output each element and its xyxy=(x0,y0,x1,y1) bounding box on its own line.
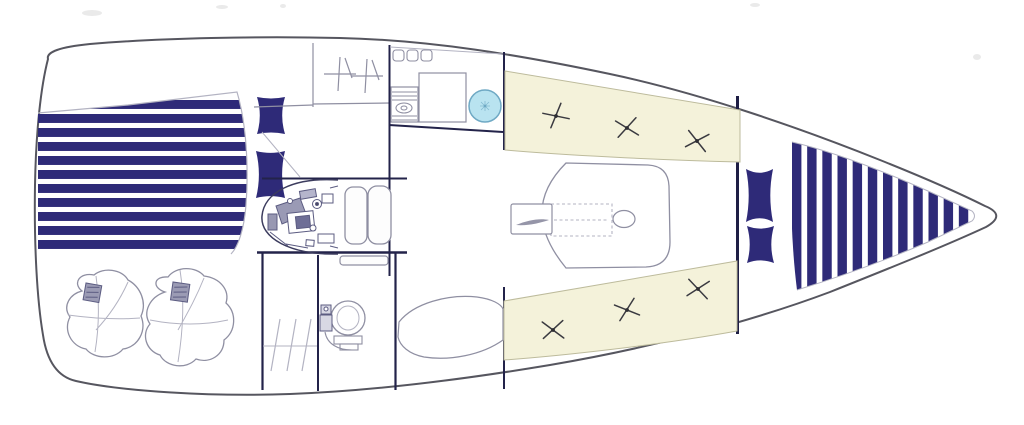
pillow xyxy=(747,226,774,263)
table-leg-slot xyxy=(511,204,552,234)
pillow xyxy=(257,97,285,134)
galley-locker xyxy=(393,50,404,61)
table-top xyxy=(542,163,670,268)
toilet-pump xyxy=(320,305,332,331)
galley-lockers xyxy=(393,50,432,61)
galley-locker xyxy=(421,50,432,61)
galley-locker xyxy=(407,50,418,61)
table-cup-recess xyxy=(613,211,635,228)
aft-double-berth xyxy=(36,92,252,254)
galley-counter xyxy=(419,73,466,122)
sail-bag-patch xyxy=(170,282,189,302)
sail-bag-left xyxy=(67,270,144,357)
boat-floor-plan xyxy=(0,0,1024,425)
v-berth-pillows xyxy=(746,169,774,263)
aft-berth-striped-mattress xyxy=(36,100,252,249)
stove xyxy=(391,87,418,122)
floor-plan-drawing xyxy=(0,0,1024,425)
sink xyxy=(469,90,501,122)
pillow xyxy=(256,151,285,198)
sail-bag-patch xyxy=(83,283,102,303)
pillow xyxy=(746,169,773,222)
sail-bag-right xyxy=(145,269,233,366)
